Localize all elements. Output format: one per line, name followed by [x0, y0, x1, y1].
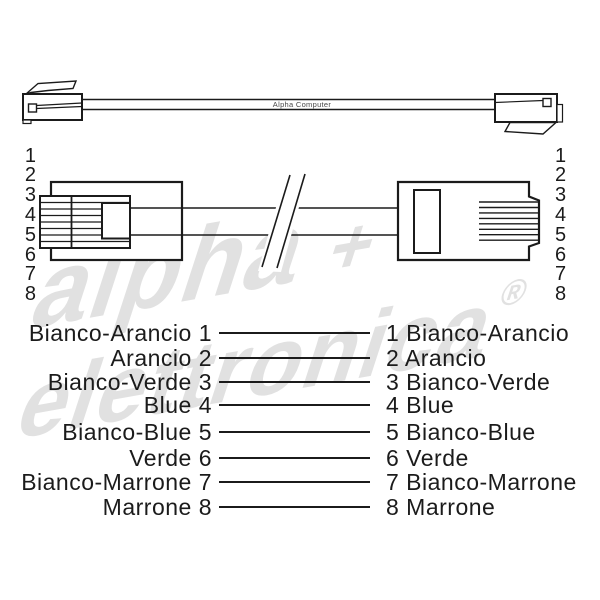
- wiring-line-8: [219, 506, 370, 508]
- pin-number-right-6: 6: [555, 244, 581, 266]
- wiring-left-label-8: Marrone 8: [103, 494, 212, 520]
- wiring-line-2: [219, 357, 370, 359]
- wiring-left-label-4: Blue 4: [144, 392, 212, 418]
- wiring-line-4: [219, 404, 370, 406]
- wiring-right-label-1: 1 Bianco-Arancio: [386, 320, 569, 346]
- wiring-line-3: [219, 381, 370, 383]
- pin-number-left-7: 7: [10, 263, 36, 285]
- wiring-left-label-1: Bianco-Arancio 1: [29, 320, 212, 346]
- pin-number-right-7: 7: [555, 263, 581, 285]
- right-plug-latch: [505, 123, 556, 135]
- wiring-left-label-7: Bianco-Marrone 7: [21, 469, 212, 495]
- right-connector-window: [414, 190, 440, 253]
- wiring-left-label-6: Verde 6: [129, 445, 212, 471]
- cable-break-symbol: [258, 171, 309, 272]
- pin-number-left-6: 6: [10, 244, 36, 266]
- right-connector: [398, 182, 539, 260]
- wiring-right-label-8: 8 Marrone: [386, 494, 495, 520]
- wiring-line-5: [219, 431, 370, 433]
- diagram-canvas: alpha + elettronica®: [0, 0, 600, 600]
- left-plug-latch: [26, 81, 76, 94]
- pin-number-right-1: 1: [555, 145, 581, 167]
- left-plug-step: [23, 120, 31, 124]
- right-plug-contact-square: [543, 99, 551, 107]
- wiring-right-label-5: 5 Bianco-Blue: [386, 419, 536, 445]
- pin-number-left-5: 5: [10, 224, 36, 246]
- wiring-right-label-6: 6 Verde: [386, 445, 469, 471]
- pin-number-right-5: 5: [555, 224, 581, 246]
- wiring-right-label-2: 2 Arancio: [386, 345, 486, 371]
- wiring-line-6: [219, 457, 370, 459]
- pin-number-left-4: 4: [10, 204, 36, 226]
- wiring-line-1: [219, 332, 370, 334]
- pin-number-left-8: 8: [10, 283, 36, 305]
- wiring-right-label-4: 4 Blue: [386, 392, 454, 418]
- pin-number-right-3: 3: [555, 184, 581, 206]
- left-plug-contact-square: [29, 104, 37, 112]
- pin-number-right-8: 8: [555, 283, 581, 305]
- wiring-line-7: [219, 481, 370, 483]
- pin-number-left-3: 3: [10, 184, 36, 206]
- wiring-left-label-2: Arancio 2: [110, 345, 212, 371]
- left-connector: [40, 182, 182, 260]
- pin-number-left-1: 1: [10, 145, 36, 167]
- pin-number-right-2: 2: [555, 164, 581, 186]
- right-plug-step: [557, 105, 563, 123]
- schematic-lines: [0, 0, 600, 600]
- cable-brand-label: Alpha Computer: [238, 100, 366, 109]
- left-connector-window: [102, 203, 130, 239]
- wiring-left-label-5: Bianco-Blue 5: [62, 419, 212, 445]
- wiring-right-label-7: 7 Bianco-Marrone: [386, 469, 577, 495]
- pin-number-left-2: 2: [10, 164, 36, 186]
- pin-number-right-4: 4: [555, 204, 581, 226]
